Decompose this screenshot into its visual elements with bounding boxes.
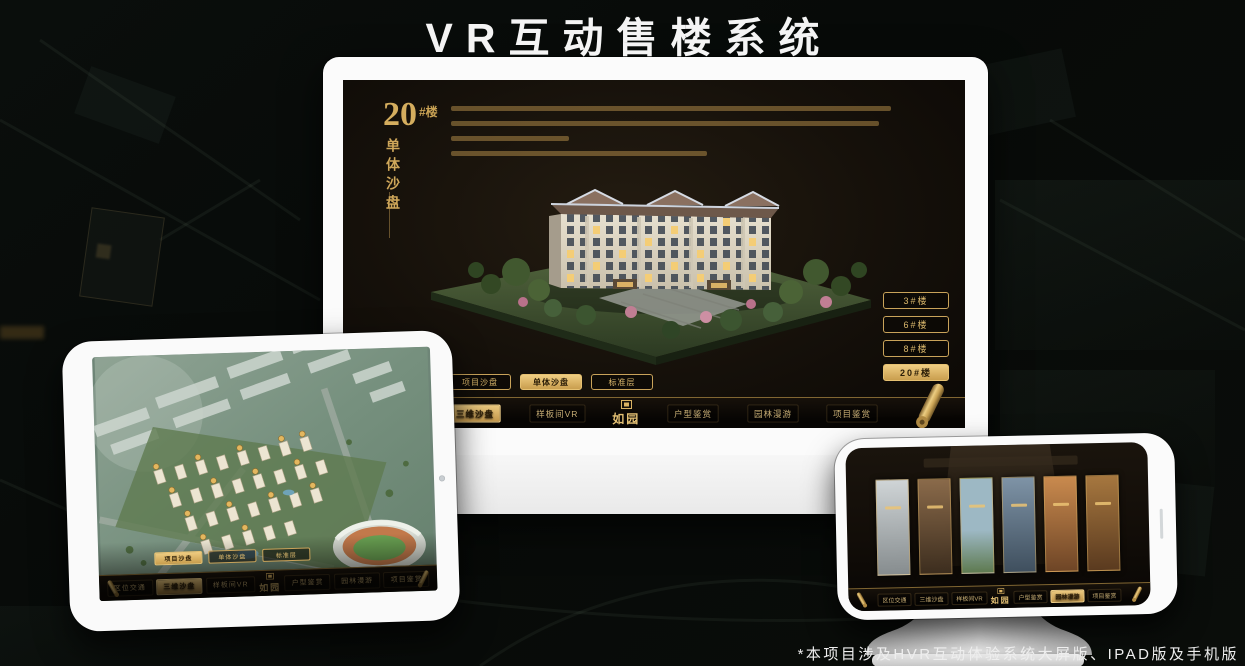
gallery-panel[interactable] [1001,476,1036,573]
app-logo[interactable]: 如园 [990,588,1010,606]
background-photo [995,180,1245,350]
tab-single-sandbox[interactable]: 单体沙盘 [208,549,256,564]
nav-item-project-gallery[interactable]: 项目鉴赏 [1087,588,1121,602]
scroll-icon[interactable] [853,589,871,610]
app-logo-label: 如园 [991,595,1011,606]
floor-button-group: 3#楼 6#楼 8#楼 20#楼 [883,292,949,381]
scroll-icon[interactable] [1128,584,1146,605]
stage: VR互动售楼系统 20 #楼 单体沙盘 [0,0,1245,666]
scene-gallery [875,475,1120,576]
speaker-icon [1160,508,1164,538]
nav-item-3d-sandbox[interactable]: 三维沙盘 [914,592,948,606]
building-render [421,152,881,392]
background-plaque [79,207,165,306]
phone-screen: 区位交通 三维沙盘 样板间VR 如园 户型鉴赏 园林漫游 项目鉴赏 [845,442,1150,611]
camera-icon [439,475,445,481]
intro-text-line [451,136,569,141]
tab-single-sandbox[interactable]: 单体沙盘 [520,374,582,390]
panel-label [969,504,985,507]
tab-standard-floor[interactable]: 标准层 [591,374,653,390]
intro-text-line [451,121,879,126]
tab-project-sandbox[interactable]: 项目沙盘 [449,374,511,390]
nav-item-3d-sandbox[interactable]: 三维沙盘 [450,404,501,422]
phone-navbar: 区位交通 三维沙盘 样板间VR 如园 户型鉴赏 园林漫游 项目鉴赏 [848,582,1150,611]
floor-button-8[interactable]: 8#楼 [883,340,949,357]
panel-label [1053,503,1069,506]
nav-item-showroom-vr[interactable]: 样板间VR [951,591,988,605]
footnote: *本项目涉及HVR互动体验系统大屏版、IPAD版及手机版 [798,643,1239,664]
panel-label [1095,502,1111,505]
nav-item-garden-tour[interactable]: 园林漫游 [747,404,798,422]
background-logo-glow [0,326,44,339]
tab-project-sandbox[interactable]: 项目沙盘 [154,551,202,566]
panel-label [1011,504,1027,507]
gallery-panel[interactable] [1043,476,1078,573]
floor-button-3[interactable]: 3#楼 [883,292,949,309]
gallery-panel[interactable] [1085,475,1120,572]
plaque-seal [96,243,112,259]
panel-label [885,506,901,509]
hero-divider [389,192,390,238]
tab-standard-floor[interactable]: 标准层 [262,547,310,562]
nav-item-floorplans[interactable]: 户型鉴赏 [1013,590,1047,604]
seal-icon [621,400,632,409]
tablet-device: 项目沙盘 单体沙盘 标准层 区位交通 三维沙盘 样板间VR 如园 户型鉴赏 园林… [62,330,461,632]
tablet-bottom-shade [98,533,438,602]
phone-device: 区位交通 三维沙盘 样板间VR 如园 户型鉴赏 园林漫游 项目鉴赏 [834,432,1178,620]
floor-button-6[interactable]: 6#楼 [883,316,949,333]
panel-label [927,505,943,508]
app-logo[interactable]: 如园 [612,400,640,427]
app-logo-label: 如园 [612,410,640,427]
nav-item-location[interactable]: 区位交通 [877,592,911,606]
nav-item-garden-tour[interactable]: 园林漫游 [1050,589,1084,603]
gallery-panel[interactable] [875,479,910,576]
nav-item-floorplans[interactable]: 户型鉴赏 [667,404,718,422]
page-title: VR互动售楼系统 [0,4,1245,64]
tablet-screen: 项目沙盘 单体沙盘 标准层 区位交通 三维沙盘 样板间VR 如园 户型鉴赏 园林… [92,347,437,601]
block-subtitle: 单体沙盘 [383,138,403,214]
intro-text-line [451,106,891,111]
nav-item-project-gallery[interactable]: 项目鉴赏 [827,404,878,422]
view-tabs: 项目沙盘 单体沙盘 标准层 [449,374,653,390]
nav-item-showroom-vr[interactable]: 样板间VR [530,404,586,422]
gallery-panel[interactable] [917,478,952,575]
seal-icon [997,588,1004,594]
block-number-suffix: #楼 [419,103,438,120]
gallery-panel[interactable] [959,477,994,574]
floor-button-20[interactable]: 20#楼 [883,364,949,381]
block-number: 20 [383,98,417,132]
